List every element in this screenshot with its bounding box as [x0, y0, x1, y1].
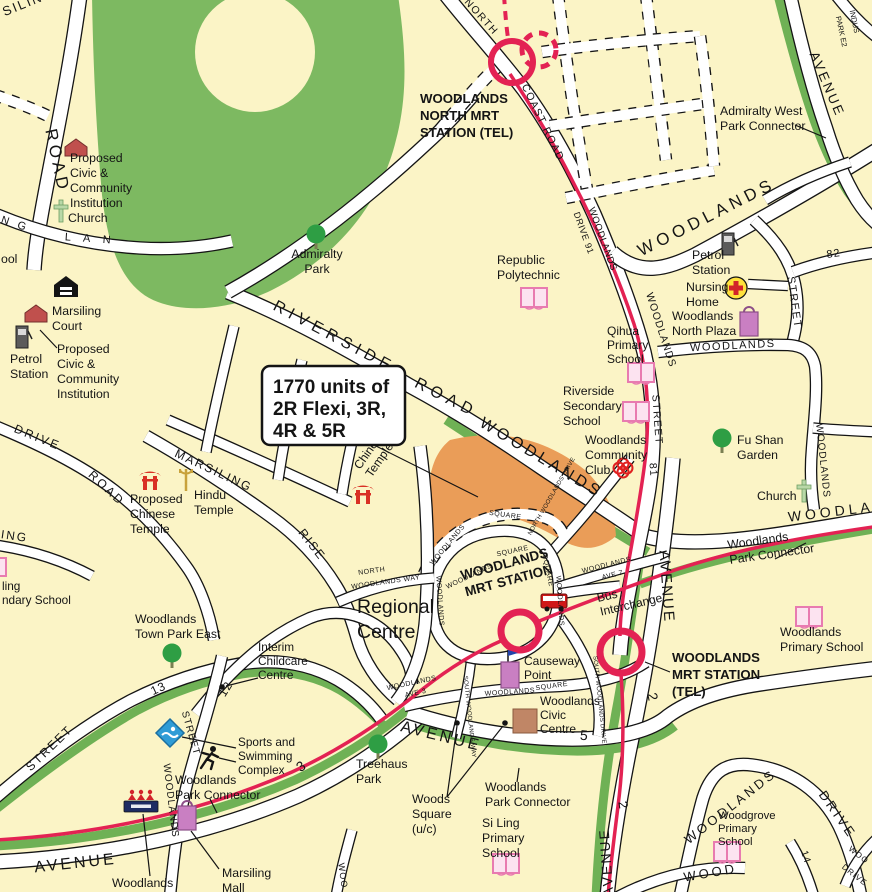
woodlands-map: SILINGROADN GL A NRIVERSIDEROADWOODLANDS… [0, 0, 872, 892]
label-admiralty-west-pc: Admiralty WestPark Connector [720, 104, 805, 133]
label-church-2: Church [757, 489, 797, 503]
label-npc-label: Woodlands [112, 876, 173, 890]
school-book-icon-rp [521, 288, 547, 309]
svg-text:Church: Church [757, 489, 797, 503]
dot-woods-square-1 [454, 720, 460, 726]
svg-text:Church: Church [68, 211, 108, 225]
svg-text:Admiralty WestPark Connector: Admiralty WestPark Connector [720, 104, 805, 133]
road-label-n5: 5 [579, 727, 589, 744]
school-book-icon-qihua [628, 363, 654, 384]
school-book-frag [0, 558, 6, 576]
label-church-1: Church [68, 211, 108, 225]
map-canvas[interactable]: SILINGROADN GL A NRIVERSIDEROADWOODLANDS… [0, 0, 872, 892]
dot-woods-square-2 [502, 720, 508, 726]
road-label-n81: 81 [647, 463, 660, 477]
road-label-n82: 82 [826, 247, 842, 261]
svg-text:ool: ool [1, 252, 17, 266]
label-callout: 1770 units of2R Flexi, 3R,4R & 5R [262, 366, 405, 445]
svg-text:Fu ShanGarden: Fu ShanGarden [737, 433, 784, 462]
label-fu-shan-garden: Fu ShanGarden [737, 433, 784, 462]
civic-centre-icon [513, 709, 537, 733]
school-book-icon-riverside [623, 402, 649, 423]
svg-text:Si LingPrimarySchool: Si LingPrimarySchool [482, 816, 525, 860]
label-frag-school-left: ool [1, 252, 17, 266]
label-si-ling-primary: Si LingPrimarySchool [482, 816, 525, 860]
label-woodlands-north-plaza: WoodlandsNorth Plaza [672, 309, 736, 338]
svg-text:WoodlandsNorth Plaza: WoodlandsNorth Plaza [672, 309, 736, 338]
svg-text:Woodlands: Woodlands [112, 876, 173, 890]
